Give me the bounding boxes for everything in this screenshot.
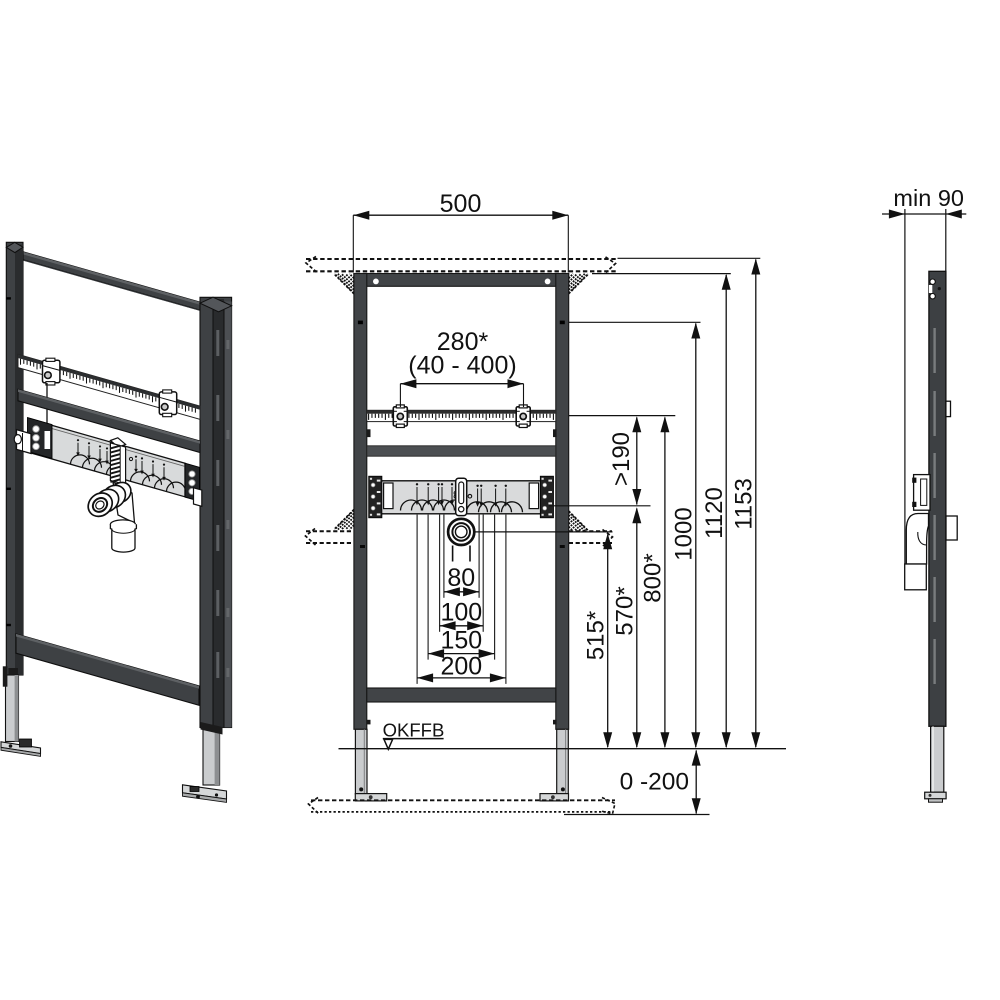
svg-text:500: 500	[440, 190, 482, 218]
svg-text:min 90: min 90	[893, 185, 964, 211]
svg-text:OKFFB: OKFFB	[383, 720, 445, 741]
svg-text:(40 - 400): (40 - 400)	[408, 352, 516, 380]
svg-text:800*: 800*	[639, 553, 666, 602]
svg-text:100: 100	[440, 598, 482, 626]
svg-text:200: 200	[440, 653, 482, 681]
svg-text:1000: 1000	[670, 507, 697, 560]
svg-text:80: 80	[447, 564, 475, 592]
svg-text:515*: 515*	[582, 611, 609, 660]
svg-text:150: 150	[440, 626, 482, 654]
svg-text:1120: 1120	[701, 487, 728, 539]
svg-text:0 -200: 0 -200	[620, 768, 689, 795]
svg-text:570*: 570*	[611, 586, 638, 635]
svg-text:1153: 1153	[730, 478, 757, 530]
svg-text:>190: >190	[608, 432, 635, 486]
